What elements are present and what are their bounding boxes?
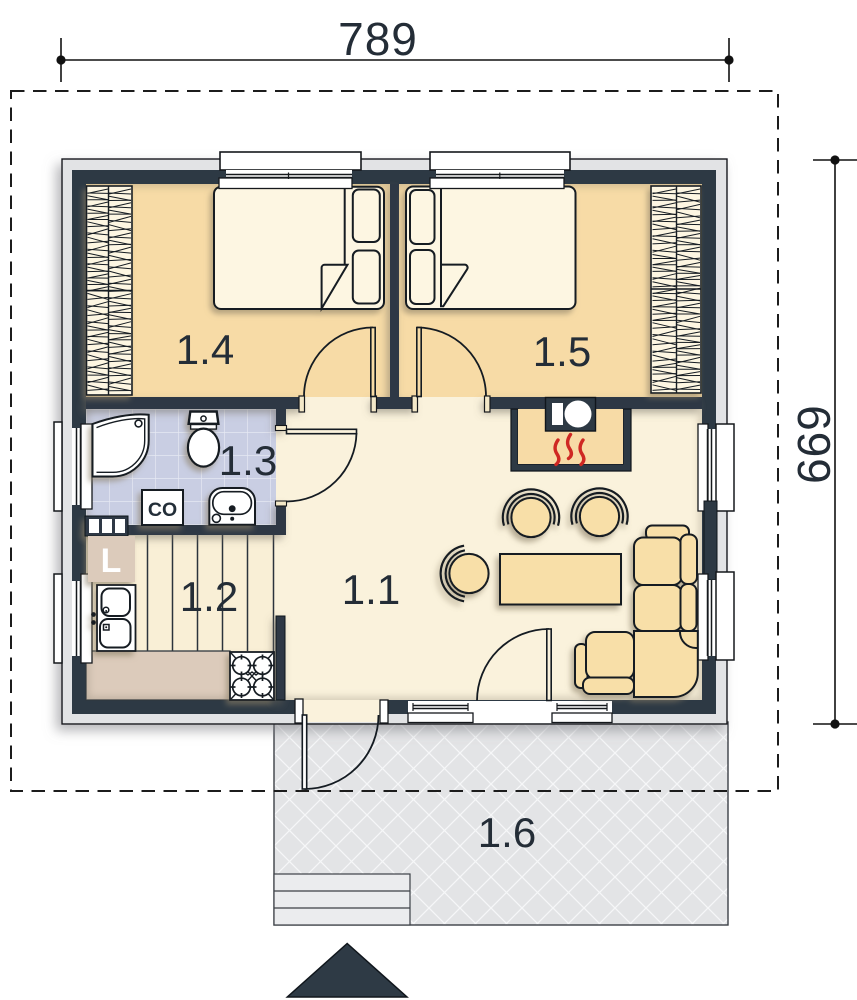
- svg-text:1.6: 1.6: [478, 809, 536, 856]
- svg-text:1.4: 1.4: [176, 326, 234, 373]
- svg-text:699: 699: [788, 405, 840, 485]
- svg-text:CO: CO: [148, 499, 177, 521]
- svg-text:L: L: [101, 542, 122, 580]
- svg-text:1.3: 1.3: [219, 437, 277, 484]
- svg-text:1.5: 1.5: [533, 328, 591, 375]
- svg-text:1.2: 1.2: [180, 573, 238, 620]
- svg-text:1.1: 1.1: [342, 566, 400, 613]
- svg-text:789: 789: [338, 13, 418, 65]
